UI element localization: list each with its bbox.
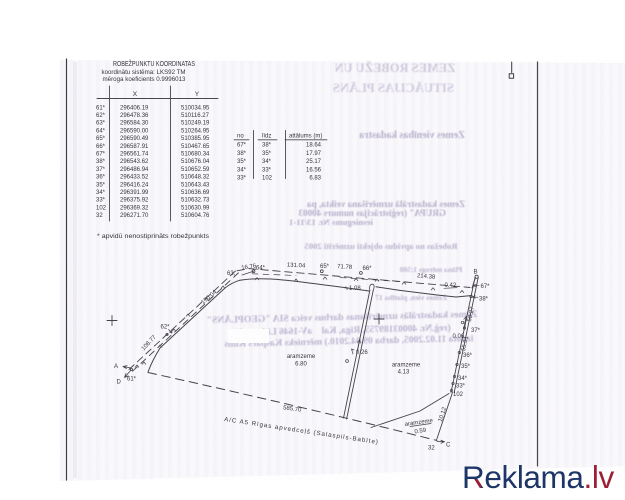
svg-text:A: A <box>114 364 118 370</box>
svg-text:4.13: 4.13 <box>398 370 410 376</box>
svg-text:296271.70: 296271.70 <box>120 213 149 219</box>
svg-text:33*: 33* <box>262 167 272 173</box>
svg-text:38*: 38* <box>237 151 247 157</box>
svg-text:510630.99: 510630.99 <box>181 205 210 211</box>
svg-text:∿1.08: ∿1.08 <box>344 286 361 292</box>
svg-text:296561.74: 296561.74 <box>120 152 149 158</box>
svg-text:510385.95: 510385.95 <box>181 136 210 142</box>
svg-text:63*: 63* <box>96 121 106 127</box>
svg-text:65*: 65* <box>96 136 106 142</box>
svg-text:67*: 67* <box>237 143 247 149</box>
svg-text:62*: 62* <box>96 113 106 119</box>
svg-text:108.77: 108.77 <box>141 334 158 352</box>
svg-text:66*: 66* <box>363 266 373 272</box>
svg-text:0.59: 0.59 <box>414 428 427 436</box>
svg-text:62*: 62* <box>161 325 171 331</box>
svg-text:ROBEŽPUNKTU KOORDINATAS: ROBEŽPUNKTU KOORDINATAS <box>113 59 195 68</box>
svg-text:510643.43: 510643.43 <box>181 182 210 188</box>
svg-text:296369.32: 296369.32 <box>120 205 149 211</box>
svg-text:32: 32 <box>96 213 103 219</box>
svg-text:510680.34: 510680.34 <box>181 152 210 158</box>
svg-text:* apvidū nenostiprināts robežp: * apvidū nenostiprināts robežpunkts <box>97 233 210 240</box>
svg-text:34*: 34* <box>96 190 106 196</box>
svg-text:510116.27: 510116.27 <box>181 113 210 119</box>
svg-text:296391.99: 296391.99 <box>120 190 149 196</box>
svg-text:B: B <box>474 270 478 276</box>
svg-text:18.64: 18.64 <box>306 143 322 149</box>
svg-text:32: 32 <box>428 446 435 452</box>
svg-text:510034.95: 510034.95 <box>181 105 210 111</box>
svg-text:koordinātu sistēma: LKS92 TM: koordinātu sistēma: LKS92 TM <box>102 69 186 76</box>
svg-text:510652.59: 510652.59 <box>181 167 210 173</box>
svg-text:510632.73: 510632.73 <box>181 198 210 204</box>
svg-text:66*: 66* <box>96 144 106 150</box>
svg-text:102: 102 <box>96 205 107 211</box>
svg-text:attālums (m): attālums (m) <box>289 134 322 140</box>
svg-text:510636.69: 510636.69 <box>181 190 210 196</box>
svg-text:38*: 38* <box>479 297 489 303</box>
svg-text:34*: 34* <box>458 376 468 382</box>
svg-text:296486.94: 296486.94 <box>120 167 149 173</box>
svg-text:296416.24: 296416.24 <box>120 182 149 188</box>
svg-text:37*: 37* <box>96 167 106 173</box>
svg-text:aramzeme: aramzeme <box>404 418 434 428</box>
svg-text:296590.49: 296590.49 <box>120 136 149 142</box>
svg-text:mēroga koeficients 0.9996013: mēroga koeficients 0.9996013 <box>103 76 186 83</box>
svg-text:170.04: 170.04 <box>200 289 218 306</box>
svg-text:D: D <box>117 380 122 386</box>
svg-text:C: C <box>446 443 451 449</box>
svg-text:510249.19: 510249.19 <box>181 121 210 127</box>
svg-text:214.38: 214.38 <box>417 273 436 281</box>
svg-text:131.04: 131.04 <box>287 263 306 270</box>
svg-text:510604.76: 510604.76 <box>181 213 210 219</box>
svg-text:6.83: 6.83 <box>309 176 321 182</box>
svg-text:34*: 34* <box>237 167 247 173</box>
svg-text:35*: 35* <box>262 151 272 157</box>
svg-text:35*: 35* <box>96 182 106 188</box>
svg-text:36*: 36* <box>463 353 473 359</box>
svg-text:16.56: 16.56 <box>306 167 322 173</box>
svg-text:35*: 35* <box>237 159 247 165</box>
svg-text:aramzeme: aramzeme <box>287 354 316 360</box>
svg-text:36*: 36* <box>96 175 106 181</box>
svg-text:10.12: 10.12 <box>438 406 449 423</box>
svg-text:61*: 61* <box>127 377 137 383</box>
svg-text:Y: Y <box>195 91 200 98</box>
svg-text:64*: 64* <box>256 266 266 272</box>
svg-text:38*: 38* <box>262 143 272 149</box>
svg-text:63,: 63, <box>227 271 236 277</box>
svg-text:17.97: 17.97 <box>306 151 322 157</box>
svg-text:33*: 33* <box>237 176 247 182</box>
svg-text:X: X <box>133 91 138 98</box>
svg-text:25.17: 25.17 <box>306 159 322 165</box>
svg-text:510467.65: 510467.65 <box>181 144 210 150</box>
svg-text:61*: 61* <box>96 105 106 111</box>
svg-text:67*: 67* <box>481 284 491 290</box>
svg-text:296587.91: 296587.91 <box>120 144 149 150</box>
svg-text:296406.19: 296406.19 <box>120 105 149 111</box>
svg-text:296433.52: 296433.52 <box>120 175 149 181</box>
svg-text:64*: 64* <box>96 128 106 134</box>
svg-text:296375.92: 296375.92 <box>120 198 149 204</box>
svg-text:37*: 37* <box>471 328 481 334</box>
svg-text:6.80: 6.80 <box>295 362 307 368</box>
svg-text:585.70: 585.70 <box>283 405 303 414</box>
svg-text:510648.32: 510648.32 <box>181 175 210 181</box>
svg-text:510676.04: 510676.04 <box>181 159 210 165</box>
svg-text:296543.62: 296543.62 <box>120 159 149 165</box>
svg-text:34*: 34* <box>262 159 272 165</box>
svg-text:102: 102 <box>262 176 273 182</box>
svg-text:296584.30: 296584.30 <box>120 121 149 127</box>
svg-text:71.78: 71.78 <box>337 264 353 271</box>
svg-text:35*: 35* <box>461 364 471 370</box>
svg-text:296478.36: 296478.36 <box>120 113 149 119</box>
svg-text:296590.00: 296590.00 <box>120 128 149 134</box>
svg-text:33*: 33* <box>96 198 106 204</box>
svg-text:510264.95: 510264.95 <box>181 128 210 134</box>
svg-text:65*: 65* <box>320 264 330 270</box>
svg-text:33*: 33* <box>456 384 466 390</box>
svg-text:līdz: līdz <box>262 134 271 140</box>
svg-text:aramzeme: aramzeme <box>392 363 421 369</box>
svg-text:38*: 38* <box>96 159 106 165</box>
svg-text:102: 102 <box>453 392 464 398</box>
svg-text:no: no <box>237 134 244 140</box>
svg-text:67*: 67* <box>96 152 106 158</box>
svg-text:0.26: 0.26 <box>356 350 368 356</box>
